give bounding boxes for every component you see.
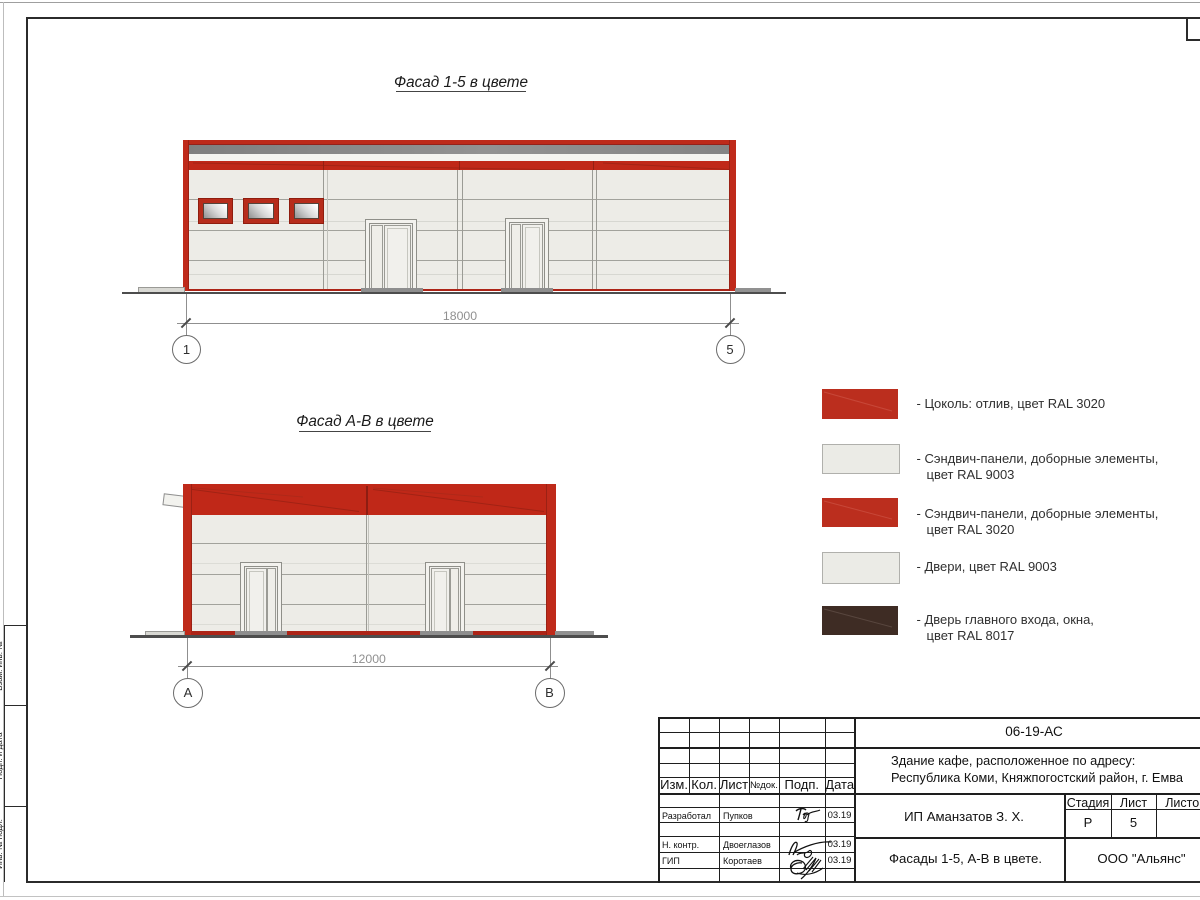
- svg-text:Взам. инв. №: Взам. инв. №: [0, 641, 4, 691]
- svg-text:Инв. № подл.: Инв. № подл.: [0, 819, 4, 869]
- svg-text:Подп. и дата: Подп. и дата: [0, 732, 4, 780]
